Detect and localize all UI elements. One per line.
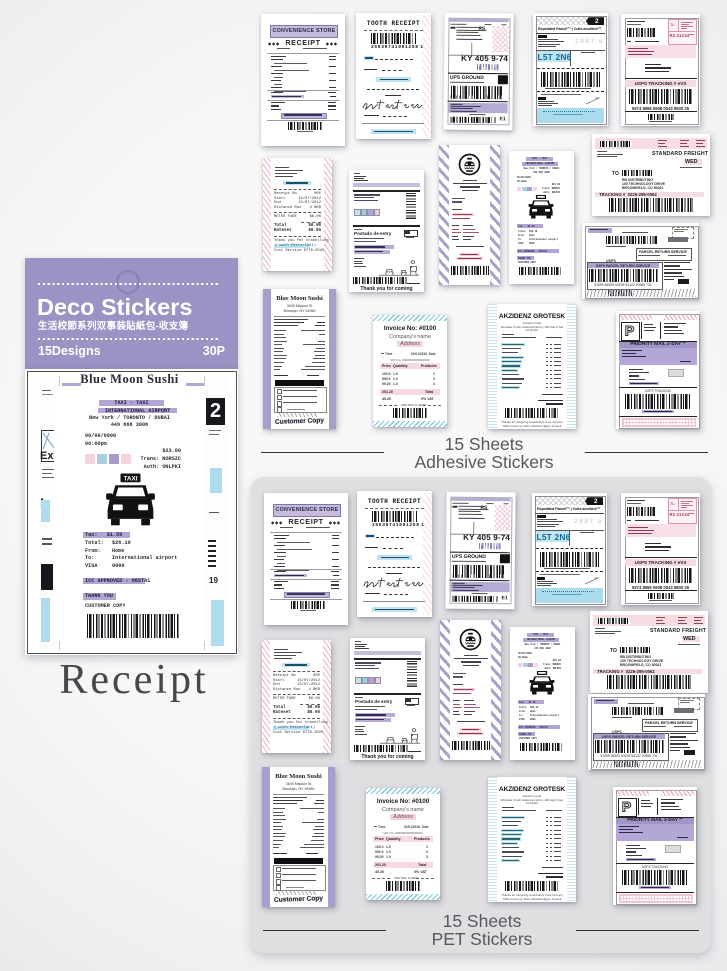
svg-text:TAXI: TAXI <box>123 476 137 483</box>
svg-text:P: P <box>622 799 631 815</box>
svg-text:P: P <box>625 323 634 339</box>
